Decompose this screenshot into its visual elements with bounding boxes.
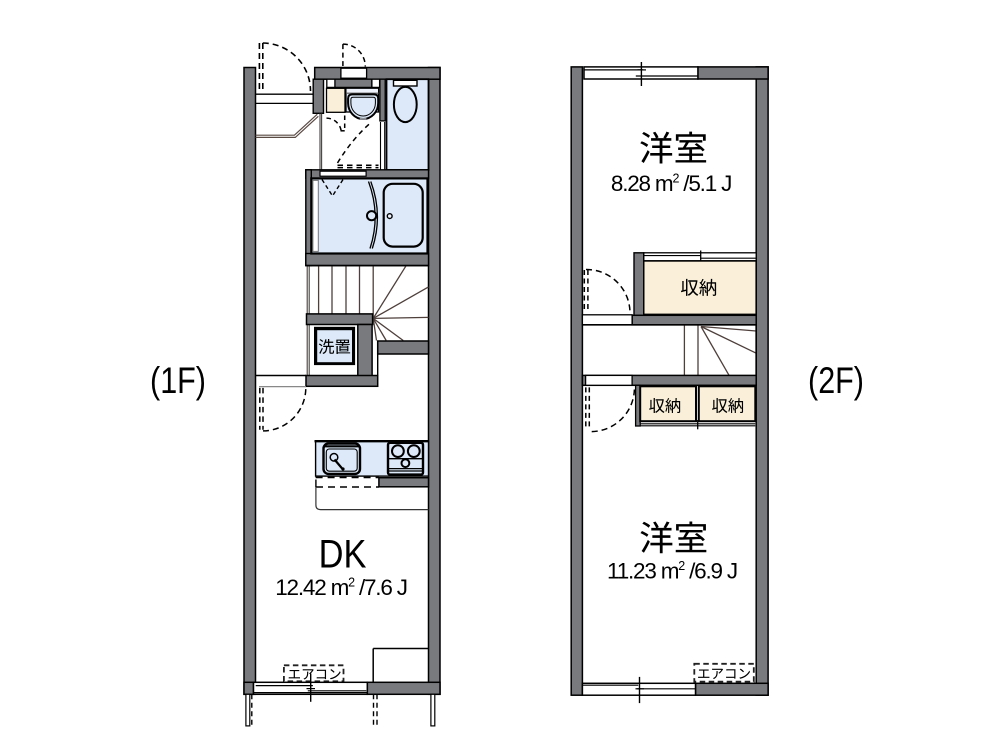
svg-text:(2F): (2F) <box>808 360 864 401</box>
svg-text:12.42 m2 /7.6 J: 12.42 m2 /7.6 J <box>275 575 407 600</box>
svg-text:DK: DK <box>319 531 367 576</box>
svg-text:(1F): (1F) <box>150 360 206 401</box>
svg-text:11.23 m2 /6.9 J: 11.23 m2 /6.9 J <box>607 558 737 583</box>
svg-text:8.28 m2 /5.1 J: 8.28 m2 /5.1 J <box>611 171 731 196</box>
